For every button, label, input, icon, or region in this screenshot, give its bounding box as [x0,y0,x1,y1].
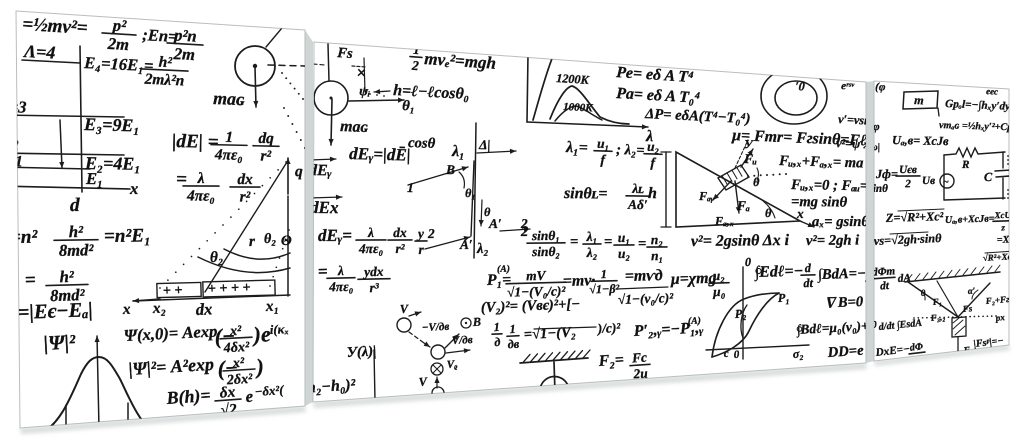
svg-text:E₁: E₁ [85,169,103,188]
svg-text:=: = [25,270,37,291]
svg-text:=: = [638,236,647,252]
svg-text:у: у [416,226,424,241]
svg-text:E₃=9E₁: E₃=9E₁ [83,114,140,135]
svg-text:Δ: Δ [826,293,838,310]
svg-text:Fс: Fс [631,350,648,366]
svg-text:2: 2 [904,178,911,190]
svg-text:; λ₂=: ; λ₂= [616,142,645,159]
svg-text:sinθ₂: sinθ₂ [531,244,560,259]
svg-text:В: В [445,162,455,177]
svg-text:2: 2 [520,224,528,240]
svg-text:(φ: (φ [875,81,886,94]
svg-text:φ: φ [873,121,880,133]
svg-text:2mλ²n: 2mλ²n [143,71,184,90]
svg-text:n₁: n₁ [651,248,663,263]
svg-text:νmₐɢ =½hₓу′²+Сp: νmₐɢ =½hₓу′²+Сp [939,120,1012,133]
svg-text:h²: h² [158,54,172,72]
svg-text:=: = [176,169,187,190]
svg-text:sinθʟ=: sinθʟ= [563,185,608,203]
svg-text:x: x [121,301,131,318]
svg-text:dx: dx [195,299,212,319]
svg-text:|dΕ| =: |dΕ| = [172,131,219,153]
svg-text:r²: r² [240,189,251,206]
svg-text:λʟ: λʟ [631,181,644,196]
svg-text:′0: ′0 [795,79,805,94]
svg-text:×: × [356,63,367,83]
svg-text:i(κₓ: i(κₓ [269,322,289,337]
svg-text:дв: дв [507,337,520,352]
svg-text:уdx: уdx [362,264,384,279]
svg-text:Uₐ,в= XсJв: Uₐ,в= XсJв [892,133,949,148]
svg-text:λ₁=: λ₁= [565,139,588,157]
svg-text:v²= 2gh і: v²= 2gh і [806,232,859,249]
svg-text:dt: dt [803,276,813,290]
svg-text:DD=е: DD=е [826,343,864,361]
svg-text:P₁: P₁ [778,291,790,305]
svg-text:x₂: x₂ [151,299,166,317]
svg-text:Fѕ: Fѕ [961,303,973,314]
svg-text:p²n: p²n [172,25,198,45]
svg-text:λ: λ [197,170,205,187]
svg-text:α′: α′ [967,285,976,296]
svg-text:u₂: u₂ [618,246,631,261]
svg-text:=: = [604,234,612,250]
svg-text:dx: dx [237,171,253,188]
svg-text:mV: mV [526,268,547,284]
svg-text:h: h [648,185,657,202]
svg-text:XсU: XсU [993,210,1011,221]
svg-text:σ₂: σ₂ [792,346,804,361]
svg-text:d: d [70,195,80,216]
svg-text:+ +: + + [163,282,183,299]
svg-text:n₂: n₂ [651,232,664,247]
svg-text:θ₁: θ₁ [402,98,415,115]
svg-text:2: 2 [427,226,435,241]
svg-text:−V/дв: −V/дв [422,321,450,334]
svg-text:−δx²(: −δx²( [254,383,285,399]
svg-text:4πε₀: 4πε₀ [328,279,354,295]
svg-text:1: 1 [407,180,414,195]
svg-text:(A): (A) [688,315,702,327]
svg-text:F₂=: F₂= [597,351,624,370]
svg-text:λ₂: λ₂ [586,245,598,260]
svg-text:r²: r² [260,147,271,164]
svg-text:sinθ₁: sinθ₁ [531,228,560,243]
svg-text:1: 1 [225,129,233,146]
svg-text:θ: θ [765,206,772,220]
svg-text:)/с)²: )/с)² [596,320,621,336]
svg-text:Δ|: Δ| [478,137,491,152]
svg-text:r: r [418,242,424,257]
svg-text:Fᵤ,ₓ+Fₐ,ₓ= mа: Fᵤ,ₓ+Fₐ,ₓ= mа [778,153,864,171]
svg-text:(A): (A) [497,264,510,275]
svg-text:θ₂: θ₂ [210,249,224,266]
svg-text:+ + + +: + + + + [208,280,251,297]
svg-text:r³: r³ [369,280,380,295]
svg-text:4πε₀: 4πε₀ [214,146,243,164]
svg-text:F₁: F₁ [931,296,942,307]
svg-text:=½mv²=: =½mv²= [22,14,89,39]
svg-text:Fₐ,ₓ: Fₐ,ₓ [714,214,734,228]
svg-text:θ₂: θ₂ [264,231,277,247]
svg-text:Fₐᵧ: Fₐᵧ [698,189,715,203]
svg-text:=|Eє−Eₐ|: =|Eє−Eₐ| [17,299,93,324]
svg-text:рx: рx [994,312,1005,323]
svg-text:u₁: u₁ [597,136,610,151]
svg-text:Θ: Θ [281,233,292,249]
svg-text:C: C [984,170,993,184]
svg-text:Jф=: Jф= [875,167,898,181]
svg-text:u₁: u₁ [618,230,630,245]
svg-text:=: = [570,234,578,250]
svg-text:R: R [961,159,970,171]
svg-text:1: 1 [493,320,500,334]
svg-text:Uв: Uв [922,175,935,187]
svg-text:r²: r² [395,241,405,256]
svg-text:V: V [400,302,410,316]
svg-text:μ₀: μ₀ [712,284,726,299]
svg-text:p²: p² [110,16,127,36]
svg-text:z: z [1000,222,1005,232]
svg-text:1: 1 [509,322,516,336]
svg-text:1: 1 [601,267,607,281]
svg-text:Fᵤ,ₓ=0 ; Fₐᵤ=: Fᵤ,ₓ=0 ; Fₐᵤ= [790,177,869,194]
svg-text:q: q [295,163,303,180]
svg-text:2m: 2m [172,44,195,64]
svg-text:θ: θ [753,175,760,189]
svg-text:=√1−(V₂: =√1−(V₂ [523,324,576,343]
svg-text:Uєв: Uєв [899,164,917,176]
svg-text:(−: (− [214,324,236,349]
svg-text:θ₁: θ₁ [465,186,476,200]
svg-text:maɢ: maɢ [213,88,246,109]
svg-text:~: ~ [943,177,949,188]
svg-text:λ₂: λ₂ [476,241,489,257]
svg-text:e: e [245,386,254,405]
svg-text:P₂: P₂ [735,306,747,321]
svg-text:Vᵨ: Vᵨ [446,358,458,371]
svg-text:u₂: u₂ [713,268,726,283]
svg-text:1200Κ: 1200Κ [556,71,590,87]
svg-text:λ₁: λ₁ [451,143,465,160]
svg-text:В=0: В=0 [837,294,865,311]
svg-text:Fѕ: Fѕ [336,45,354,62]
svg-text:λ: λ [337,263,344,278]
svg-text:dEᵧ=: dEᵧ= [318,226,352,245]
svg-text:Fₐ: Fₐ [736,198,750,213]
svg-text:Fᵤ: Fᵤ [743,151,757,166]
svg-text:maɢ: maɢ [340,118,369,136]
svg-text:u₂: u₂ [647,139,660,154]
svg-text:m: m [914,93,924,107]
svg-text:0: 0 [745,255,751,269]
svg-text:λ₁: λ₁ [586,229,598,244]
svg-text:|Ψ|²: |Ψ|² [43,331,76,355]
svg-text:√1−β²: √1−β² [589,282,620,297]
svg-text:Uₐ,в+XсJв=: Uₐ,в+XсJв= [945,213,995,226]
svg-text:д: д [494,335,501,349]
svg-text:Αδ′: Αδ′ [627,197,648,212]
svg-text:dx: dx [393,225,407,240]
svg-text:У(λ)|: У(λ)| [346,343,376,361]
svg-text:еʳˢᵛ: еʳˢᵛ [841,80,856,93]
svg-text:v²= 2gsinθ Δx і: v²= 2gsinθ Δx і [691,232,790,250]
svg-text:A′: A′ [488,216,502,231]
svg-text:aₓ= gsinθ: aₓ= gsinθ [812,214,869,230]
svg-text:h²: h² [69,222,84,241]
svg-text:λ: λ [367,225,374,240]
svg-text:dt: dt [880,280,890,293]
svg-text:E₄=16E₁=: E₄=16E₁= [83,53,154,75]
svg-text:)e: )e [251,322,271,347]
svg-text:dq: dq [258,130,274,147]
svg-text:dEᵧ=|dĒ|: dEᵧ=|dĒ| [349,144,411,165]
svg-text:=n²E₁: =n²E₁ [104,225,151,247]
svg-text:μ=χmg: μ=χmg [670,270,717,288]
svg-text:Z=√R²+Xс²: Z=√R²+Xс² [885,209,944,225]
svg-text:∫ВdA=−∫: ∫ВdA=−∫ [817,266,872,283]
svg-text:(−: (− [217,356,239,381]
svg-text:8md²: 8md² [59,240,95,259]
svg-text:x: x [129,179,138,198]
svg-text:V/дв: V/дв [452,334,473,347]
svg-text:h²: h² [59,267,75,286]
svg-text:2m: 2m [106,34,129,54]
svg-text:c: c [723,348,729,360]
svg-text:В: В [472,315,482,329]
svg-text:2: 2 [411,58,420,74]
svg-text:=mg sinθ: =mg sinθ [791,194,848,211]
svg-text:1000Κ: 1000Κ [563,101,594,114]
svg-text:=mѵд: =mѵд [625,267,663,285]
svg-text:dΕx: dΕx [310,198,339,217]
svg-text:Λ=4: Λ=4 [22,41,56,63]
svg-text:4πε₀: 4πε₀ [358,241,384,256]
svg-text:x₁: x₁ [264,297,279,315]
svg-text:4πε₀: 4πε₀ [186,188,215,205]
svg-text:ψᵢ: ψᵢ [359,83,371,99]
svg-text:√1−(v₀/с)²: √1−(v₀/с)² [618,290,675,307]
svg-text:cosθ: cosθ [408,135,436,152]
